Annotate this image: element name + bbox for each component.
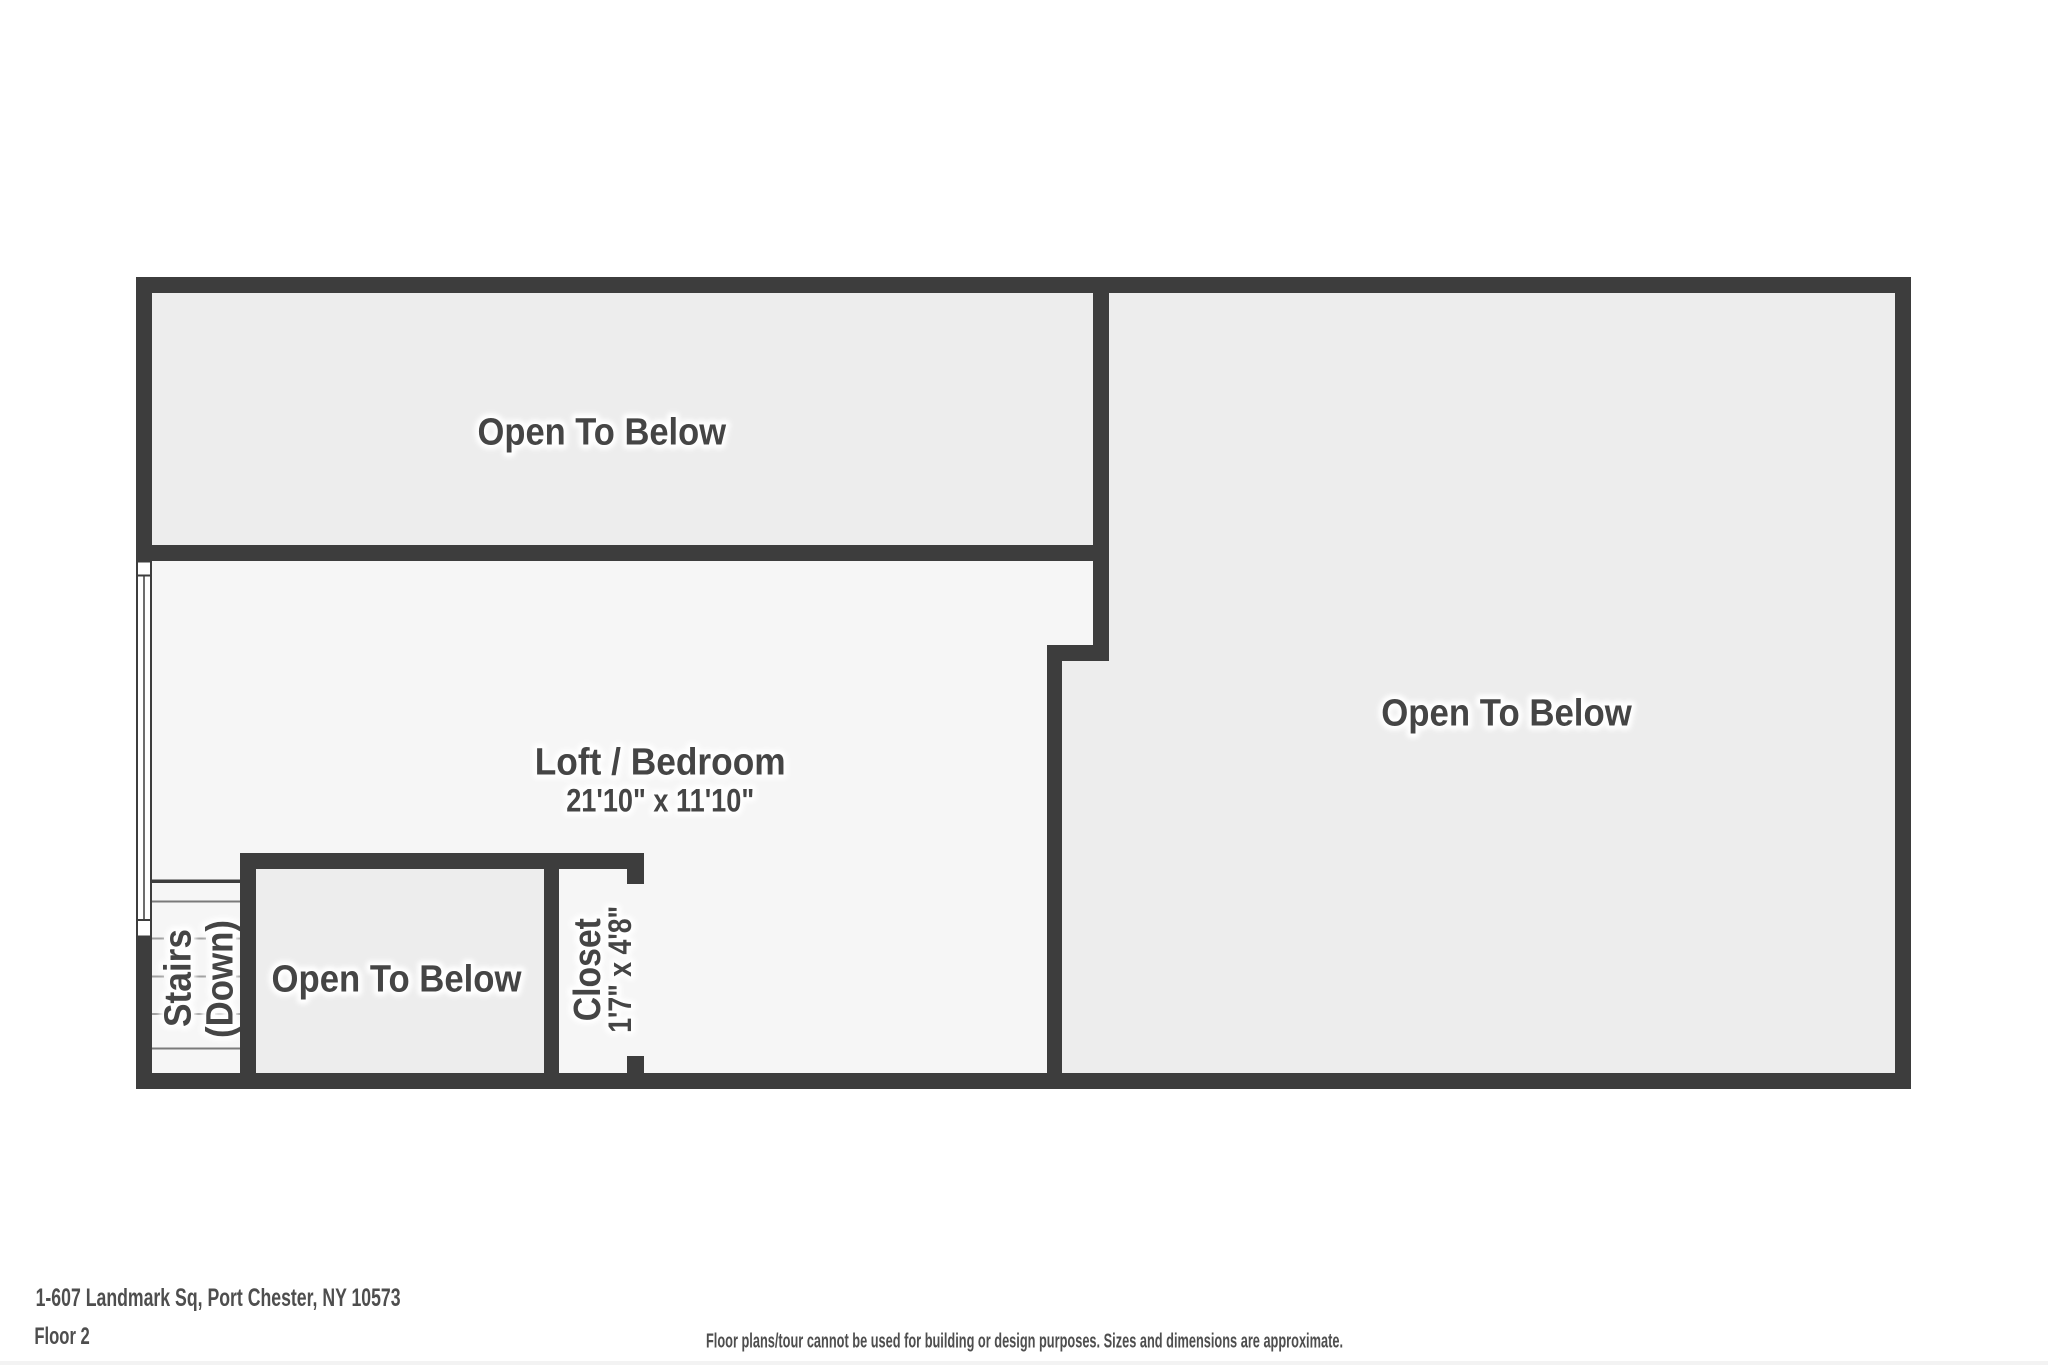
svg-text:21'10" x 11'10": 21'10" x 11'10" [566,782,754,818]
svg-text:Stairs: Stairs [158,929,200,1027]
svg-text:Loft / Bedroom: Loft / Bedroom [535,742,786,784]
svg-text:Open To Below: Open To Below [1381,693,1632,735]
svg-text:1-607 Landmark Sq, Port Cheste: 1-607 Landmark Sq, Port Chester, NY 1057… [36,1284,401,1312]
svg-text:1'7" x 4'8": 1'7" x 4'8" [602,906,638,1033]
svg-text:(Down): (Down) [200,920,242,1038]
svg-text:Open To Below: Open To Below [272,959,522,1001]
svg-text:Floor plans/tour cannot be use: Floor plans/tour cannot be used for buil… [706,1330,1343,1352]
svg-text:Open To Below: Open To Below [478,411,727,453]
svg-text:Floor 2: Floor 2 [34,1323,89,1350]
